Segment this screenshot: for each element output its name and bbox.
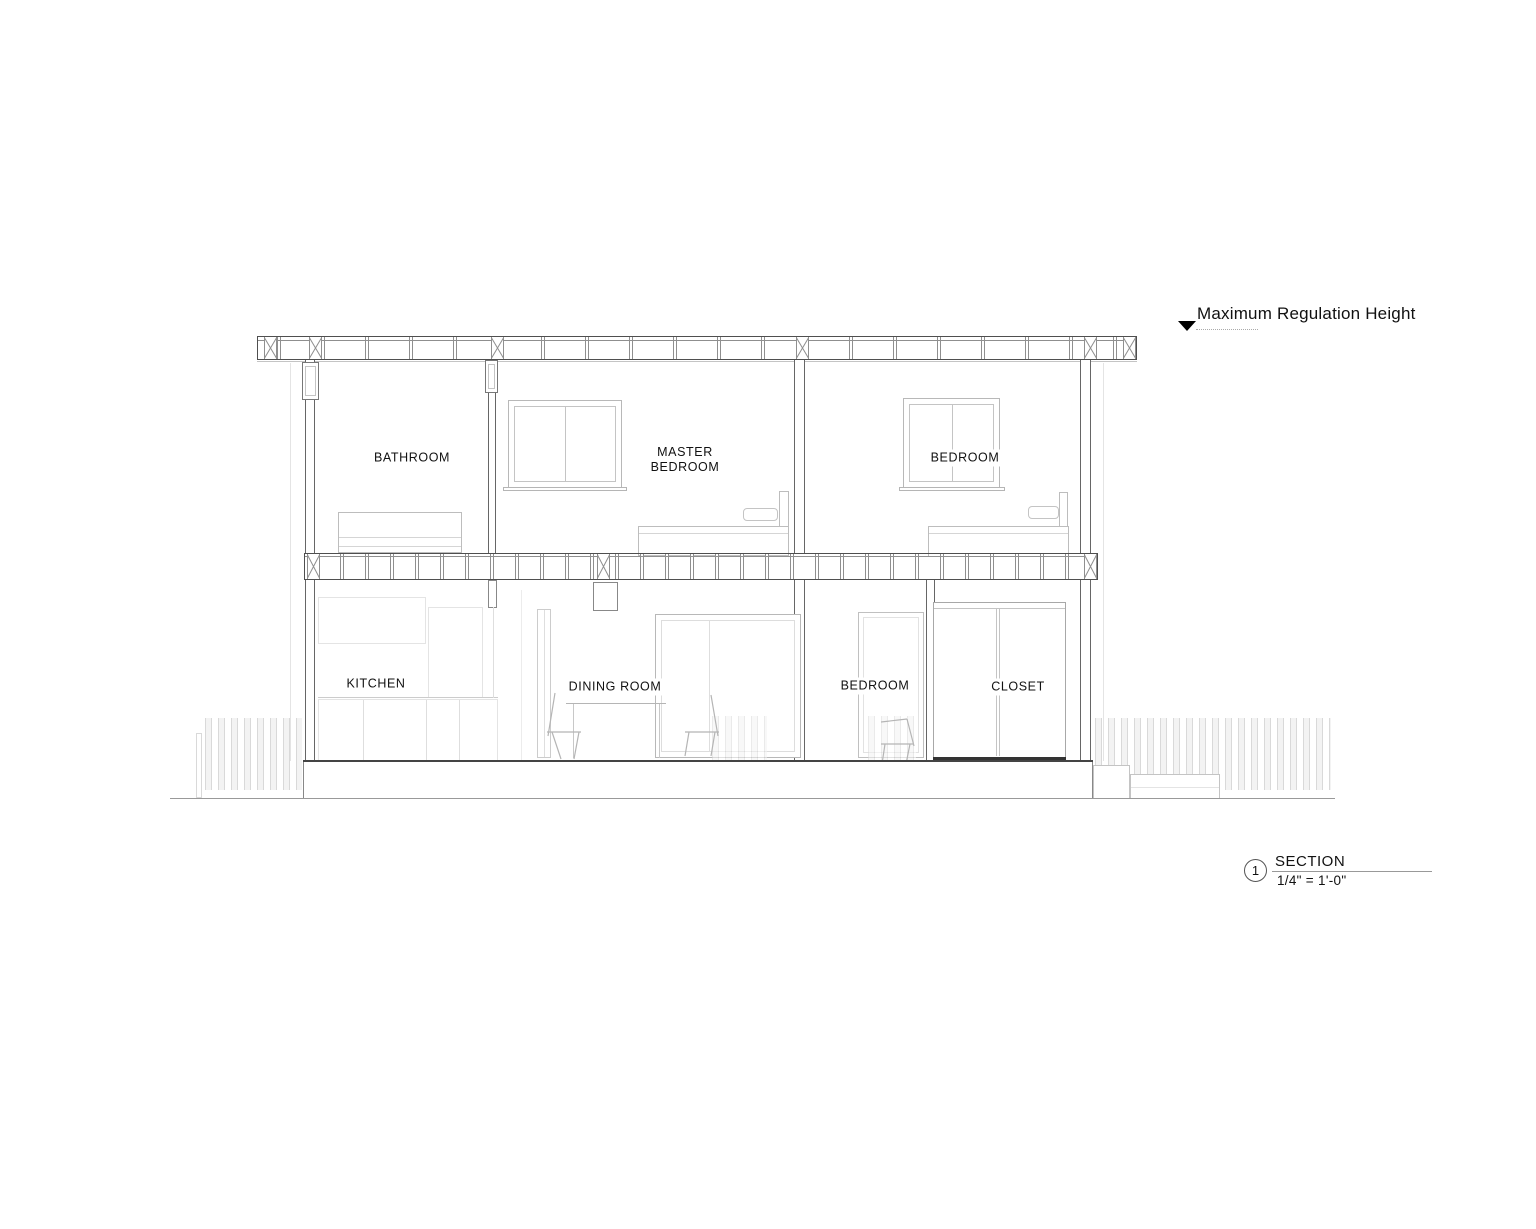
kitchen-dining-divider-line bbox=[521, 590, 522, 762]
floor-sheathing-line bbox=[305, 556, 1097, 557]
vanity-toekick-line bbox=[339, 546, 461, 547]
eave-projection-line-left bbox=[290, 363, 291, 761]
table-leg bbox=[659, 704, 660, 758]
view-title: SECTION bbox=[1275, 853, 1345, 870]
bathroom-vanity bbox=[338, 512, 462, 553]
window-bedroom bbox=[903, 398, 1000, 488]
stoop-lower-pad bbox=[1130, 774, 1220, 799]
bedroom-chair bbox=[873, 718, 919, 766]
kitchen-upper-cabinets bbox=[318, 597, 426, 644]
room-label-bathroom: BATHROOM bbox=[371, 450, 453, 467]
floor-x-brace bbox=[307, 554, 320, 579]
bed-pillow-master bbox=[743, 508, 778, 521]
wall-header-center bbox=[485, 360, 498, 393]
post-stub-kitchen bbox=[488, 580, 497, 608]
room-label-bedroom-lower: BEDROOM bbox=[838, 678, 913, 695]
detail-number-bubble: 1 bbox=[1244, 859, 1267, 882]
roof-joist-band bbox=[257, 336, 1137, 360]
room-label-kitchen: KITCHEN bbox=[343, 676, 408, 693]
picket-fence-left bbox=[205, 718, 302, 790]
wall-master-bedroom bbox=[794, 360, 805, 553]
room-label-closet: CLOSET bbox=[988, 679, 1048, 696]
cabinet-divider-line bbox=[363, 700, 364, 760]
eave-projection-line-right bbox=[1103, 363, 1104, 761]
room-label-master-bedroom: MASTER BEDROOM bbox=[648, 444, 723, 476]
dining-chair bbox=[543, 692, 593, 760]
kitchen-pantry-line bbox=[493, 607, 494, 698]
wall-header-left bbox=[302, 362, 319, 400]
wall-header-inner-line bbox=[305, 366, 316, 396]
floor-x-brace bbox=[1084, 554, 1097, 579]
kitchen-base-cabinets bbox=[318, 699, 498, 761]
foundation-slab bbox=[303, 762, 1093, 799]
wall-exterior-right-upper bbox=[1080, 360, 1091, 553]
bed-pillow-bedroom bbox=[1028, 506, 1059, 519]
section-drawing-sheet: BATHROOM MASTER BEDROOM BEDROOM KITCHEN … bbox=[0, 0, 1536, 1229]
mattress-line bbox=[929, 533, 1068, 534]
wall-exterior-right-lower bbox=[1080, 580, 1091, 762]
title-underline bbox=[1272, 871, 1432, 872]
roof-sheathing-line bbox=[258, 340, 1136, 341]
bed-platform-master bbox=[638, 526, 789, 556]
mattress-line bbox=[639, 533, 788, 534]
max-regulation-height-label: Maximum Regulation Height bbox=[1197, 304, 1416, 324]
cabinet-divider-line bbox=[426, 700, 427, 760]
room-label-dining-room: DINING ROOM bbox=[566, 679, 665, 696]
detail-number: 1 bbox=[1252, 863, 1259, 878]
fence-post bbox=[196, 733, 202, 798]
wall-header-inner-line bbox=[488, 364, 495, 389]
ground-line bbox=[170, 798, 1335, 799]
vanity-drawer-line bbox=[339, 537, 461, 538]
second-floor-joist-band bbox=[304, 553, 1098, 580]
kitchen-counter-line bbox=[318, 697, 498, 698]
kitchen-fridge bbox=[428, 607, 483, 698]
datum-leader-line bbox=[1196, 329, 1258, 330]
window-mullion bbox=[565, 406, 566, 482]
window-sill bbox=[899, 487, 1005, 491]
roof-x-brace bbox=[264, 337, 277, 359]
roof-x-brace bbox=[1123, 337, 1136, 359]
window-master-bedroom bbox=[508, 400, 622, 488]
dining-chair bbox=[671, 694, 723, 758]
roof-fascia-line bbox=[257, 361, 1137, 362]
stoop-tread-line bbox=[1131, 787, 1219, 788]
view-scale: 1/4" = 1'-0" bbox=[1277, 873, 1346, 888]
room-label-bedroom-upper: BEDROOM bbox=[928, 450, 1003, 467]
window-sill bbox=[503, 487, 627, 491]
window-mullion bbox=[952, 404, 953, 482]
beam-stub-dining bbox=[593, 582, 618, 611]
roof-x-brace bbox=[1084, 337, 1097, 359]
stoop-upper-step bbox=[1093, 765, 1130, 799]
roof-x-brace bbox=[491, 337, 504, 359]
cabinet-divider-line bbox=[459, 700, 460, 760]
datum-triangle-marker bbox=[1178, 321, 1196, 331]
wall-exterior-left-lower bbox=[305, 580, 315, 762]
floor-x-brace bbox=[597, 554, 610, 579]
roof-x-brace bbox=[309, 337, 322, 359]
roof-x-brace bbox=[796, 337, 809, 359]
